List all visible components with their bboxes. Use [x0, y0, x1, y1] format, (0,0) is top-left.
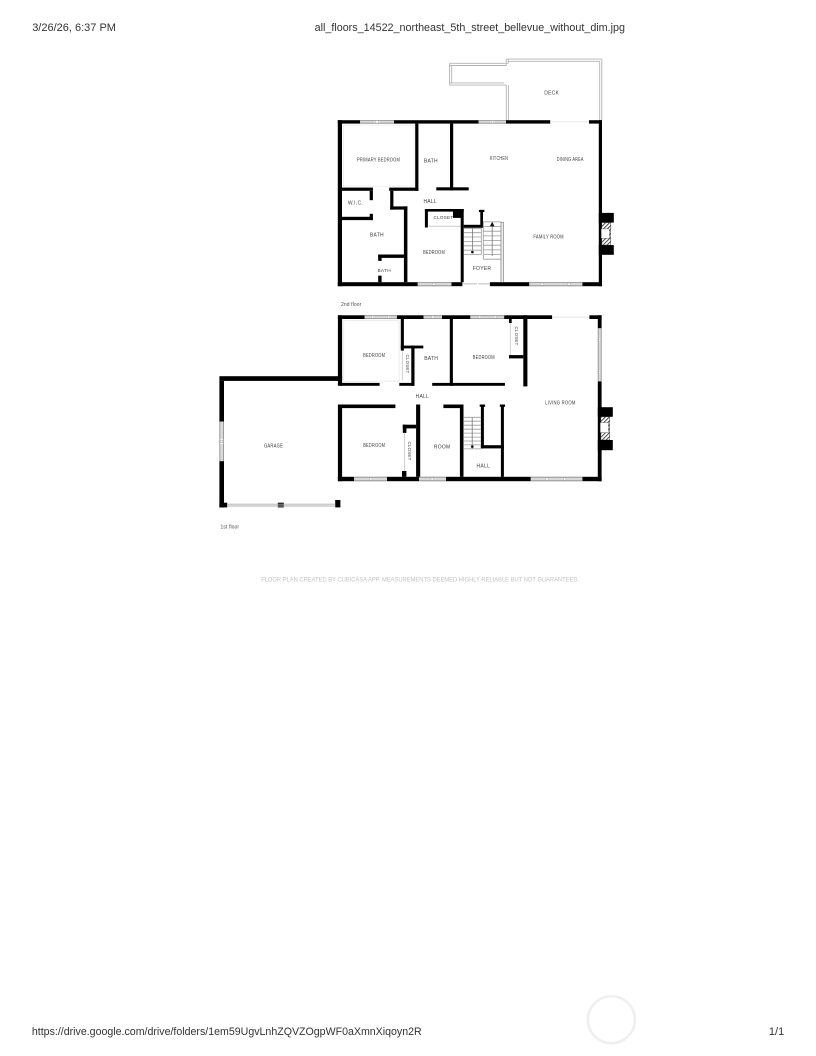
svg-text:https://drive.google.com/drive: https://drive.google.com/drive/folders/1… [32, 1026, 422, 1038]
svg-text:1/1: 1/1 [769, 1026, 784, 1038]
svg-text:LIVING ROOM: LIVING ROOM [545, 401, 575, 407]
svg-text:BEDROOM: BEDROOM [363, 353, 385, 359]
svg-text:3/26/26, 6:37 PM: 3/26/26, 6:37 PM [32, 22, 116, 34]
svg-text:GARAGE: GARAGE [264, 443, 283, 449]
svg-text:CLOSET: CLOSET [434, 215, 454, 220]
svg-text:FOYER: FOYER [473, 266, 492, 272]
svg-text:KITCHEN: KITCHEN [490, 156, 508, 162]
svg-text:CLOSET: CLOSET [514, 326, 519, 345]
svg-text:W.I.C.: W.I.C. [348, 200, 363, 206]
svg-text:CLOSET: CLOSET [407, 441, 412, 460]
svg-text:all_floors_14522_northeast_5th: all_floors_14522_northeast_5th_street_be… [315, 22, 625, 34]
svg-text:DECK: DECK [544, 90, 559, 96]
svg-text:BATH: BATH [424, 158, 438, 164]
svg-text:HALL: HALL [423, 199, 437, 205]
svg-text:BEDROOM: BEDROOM [363, 443, 385, 449]
svg-text:ROOM: ROOM [434, 445, 451, 451]
svg-text:FLOOR PLAN CREATED BY CUBICASA: FLOOR PLAN CREATED BY CUBICASA APP. MEAS… [261, 576, 579, 583]
svg-text:DINING AREA: DINING AREA [557, 157, 584, 163]
svg-text:HALL: HALL [416, 394, 430, 400]
svg-text:BATH: BATH [370, 232, 384, 238]
svg-text:FAMILY ROOM: FAMILY ROOM [533, 235, 563, 241]
svg-text:2nd floor: 2nd floor [341, 302, 362, 308]
svg-text:BATH: BATH [424, 356, 438, 362]
svg-text:BEDROOM: BEDROOM [423, 250, 445, 256]
svg-text:HALL: HALL [477, 464, 491, 470]
svg-text:1st floor: 1st floor [221, 524, 240, 530]
svg-text:CLOSET: CLOSET [405, 354, 410, 373]
svg-text:BATH: BATH [377, 268, 391, 274]
svg-text:BEDROOM: BEDROOM [473, 355, 495, 361]
svg-text:PRIMARY BEDROOM: PRIMARY BEDROOM [357, 157, 400, 163]
